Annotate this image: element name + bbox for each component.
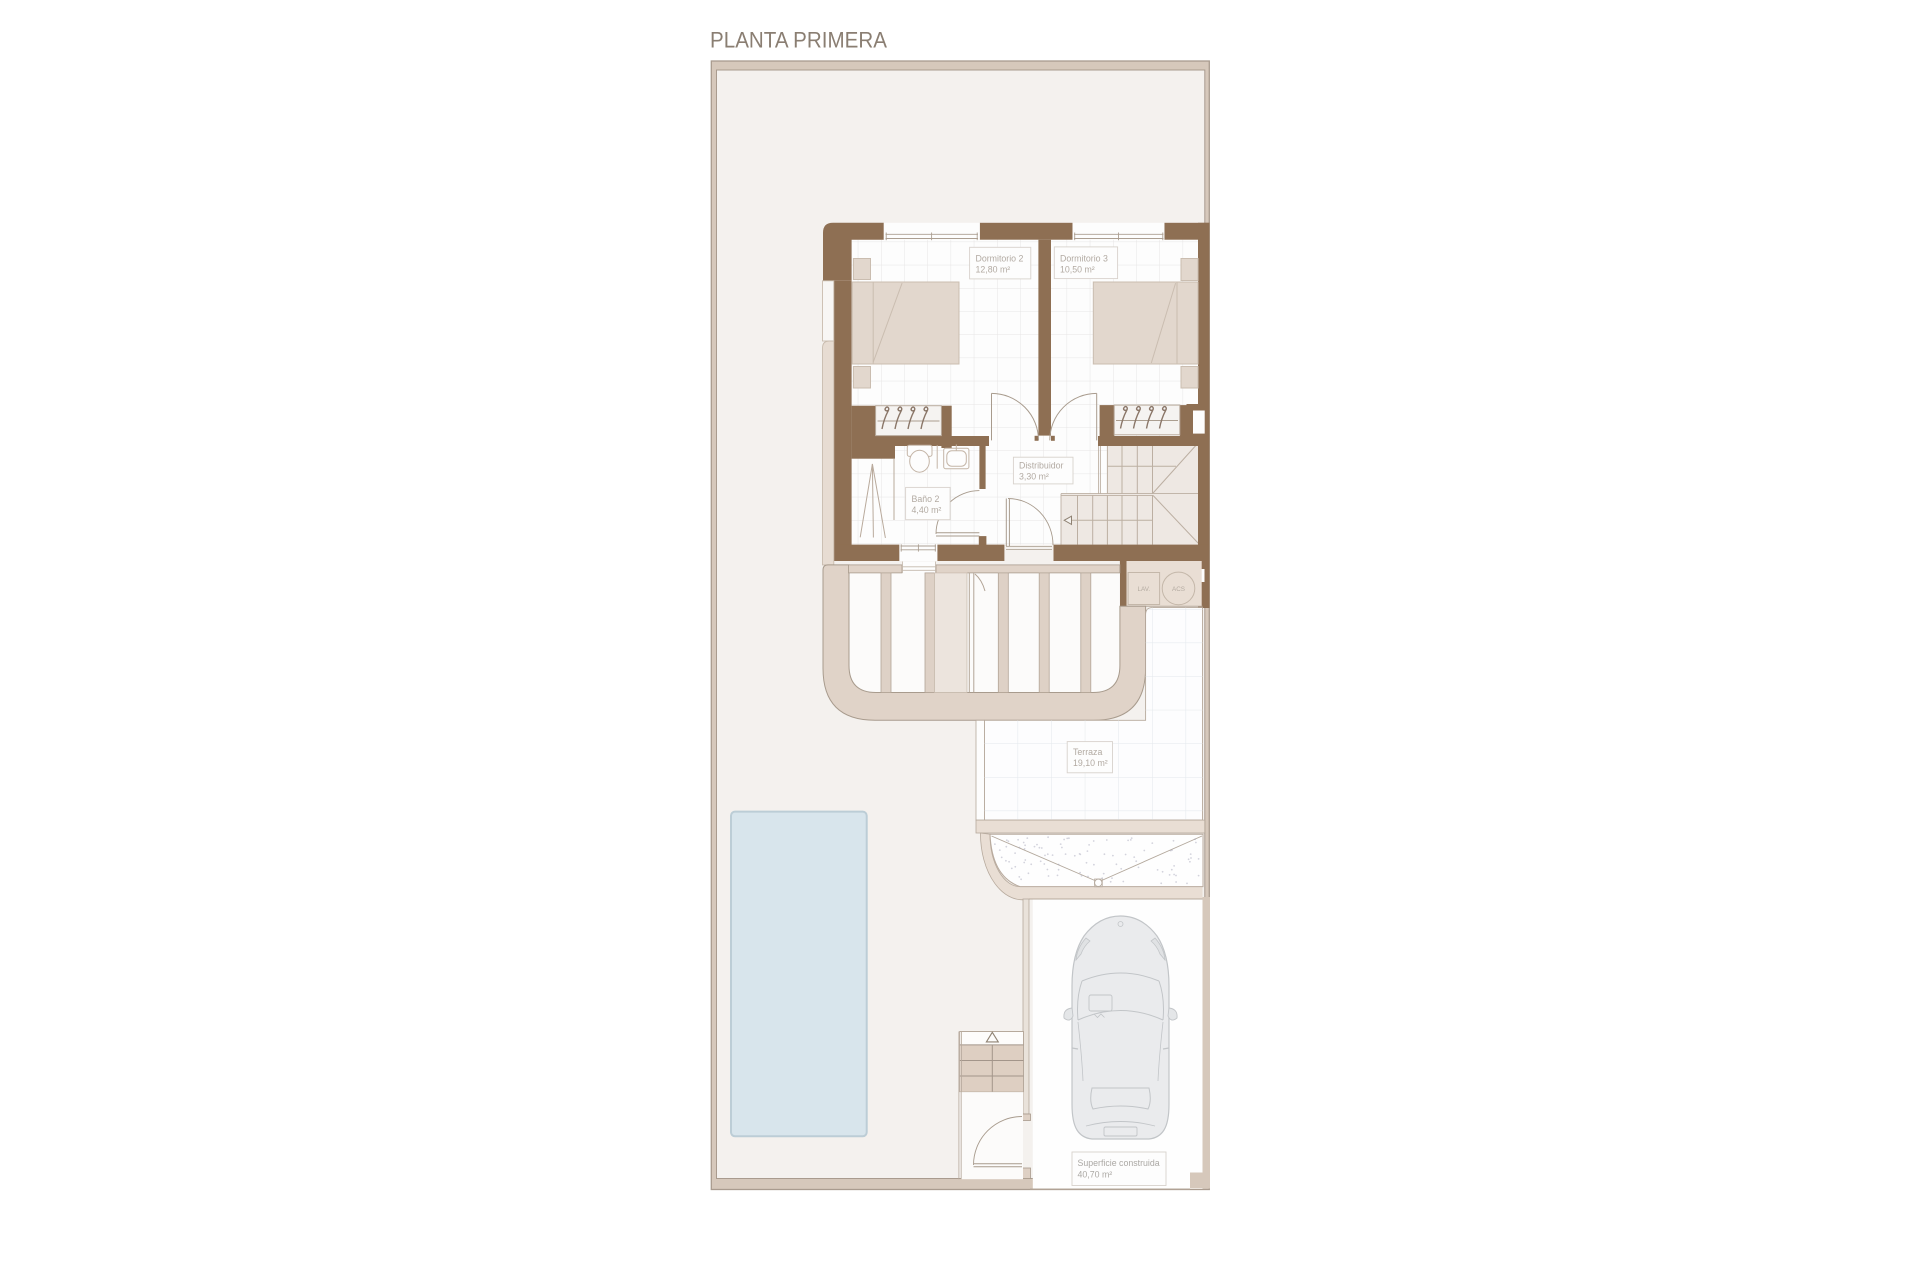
svg-text:12,80 m²: 12,80 m² <box>976 264 1011 274</box>
svg-text:10,50 m²: 10,50 m² <box>1060 264 1095 274</box>
svg-text:Distribuidor: Distribuidor <box>1019 460 1064 470</box>
svg-text:19,10 m²: 19,10 m² <box>1073 758 1108 768</box>
svg-text:PLANTA PRIMERA: PLANTA PRIMERA <box>710 28 887 53</box>
svg-text:Dormitorio 2: Dormitorio 2 <box>976 253 1024 263</box>
svg-text:40,70 m²: 40,70 m² <box>1078 1169 1113 1179</box>
svg-text:LAV.: LAV. <box>1137 586 1150 593</box>
svg-text:4,40 m²: 4,40 m² <box>912 505 942 515</box>
svg-text:Superficie construida: Superficie construida <box>1078 1158 1160 1168</box>
svg-text:Baño 2: Baño 2 <box>912 494 940 504</box>
svg-text:Terraza: Terraza <box>1073 747 1102 757</box>
svg-text:3,30 m²: 3,30 m² <box>1019 471 1049 481</box>
svg-text:ACS: ACS <box>1172 586 1185 593</box>
svg-text:Dormitorio 3: Dormitorio 3 <box>1060 253 1108 263</box>
